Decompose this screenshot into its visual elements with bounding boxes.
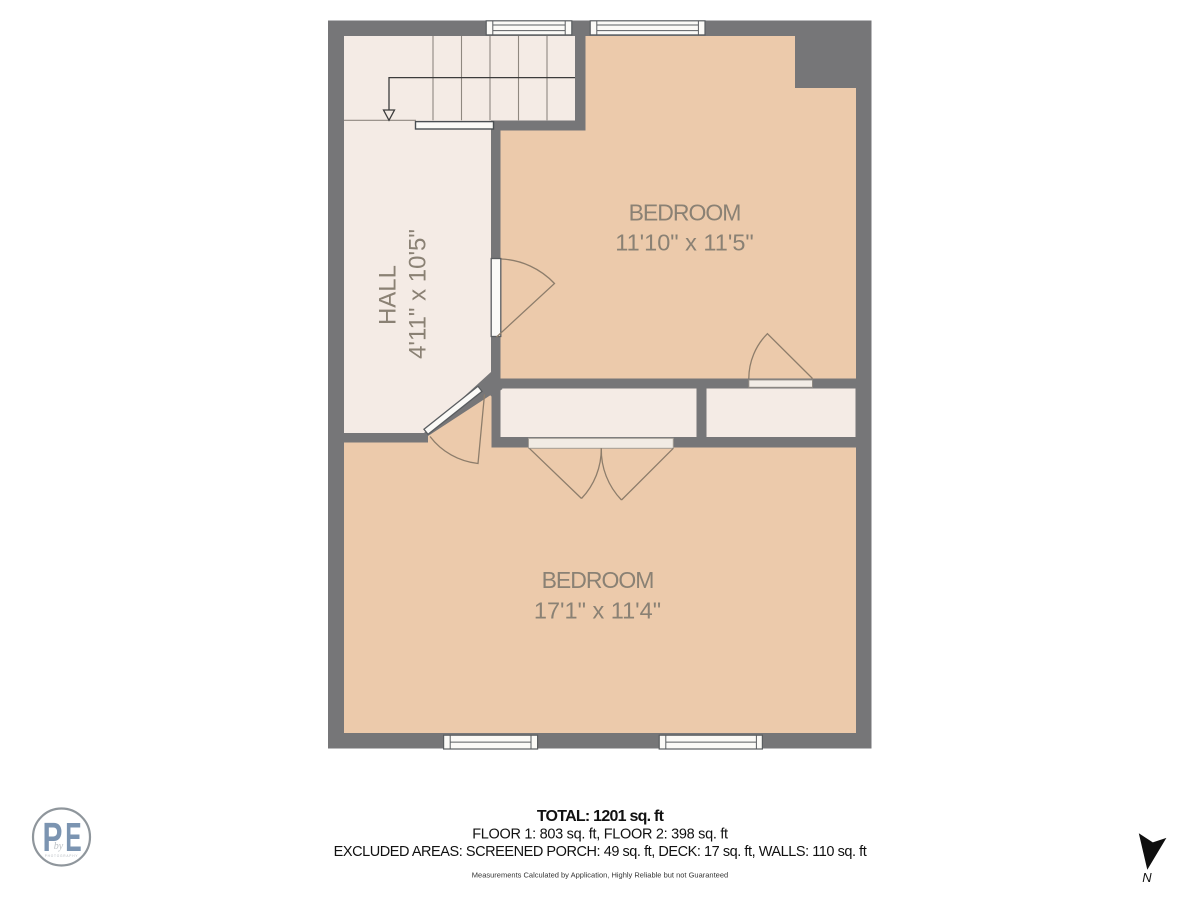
svg-text:4'11" x 10'5": 4'11" x 10'5": [405, 229, 432, 359]
svg-text:11'10" x 11'5": 11'10" x 11'5": [615, 230, 753, 256]
svg-text:FLOOR 1: 803 sq. ft, FLOOR 2:: FLOOR 1: 803 sq. ft, FLOOR 2: 398 sq. ft: [472, 827, 728, 843]
svg-text:EXCLUDED AREAS: SCREENED PORCH: EXCLUDED AREAS: SCREENED PORCH: 49 sq. f…: [334, 844, 867, 860]
svg-text:PHOTOGRAPHY: PHOTOGRAPHY: [45, 854, 79, 858]
svg-text:BEDROOM: BEDROOM: [542, 567, 654, 593]
svg-text:BEDROOM: BEDROOM: [629, 200, 741, 226]
svg-text:HALL: HALL: [375, 265, 402, 325]
svg-text:N: N: [1142, 870, 1152, 885]
svg-text:by: by: [54, 841, 64, 852]
svg-text:Measurements Calculated by App: Measurements Calculated by Application, …: [472, 871, 728, 880]
svg-text:17'1" x 11'4": 17'1" x 11'4": [534, 598, 661, 624]
svg-text:TOTAL: 1201 sq. ft: TOTAL: 1201 sq. ft: [537, 808, 665, 825]
